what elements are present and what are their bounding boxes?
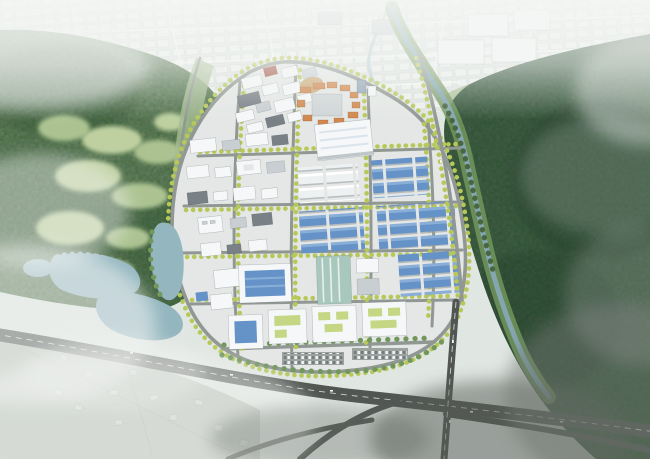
global-haze: [0, 0, 650, 459]
aerial-rendering: Aerial bird's-eye architectural renderin…: [0, 0, 650, 459]
fog-overlays: [0, 0, 650, 459]
aerial-rendering-canvas: Aerial bird's-eye architectural renderin…: [0, 0, 650, 459]
